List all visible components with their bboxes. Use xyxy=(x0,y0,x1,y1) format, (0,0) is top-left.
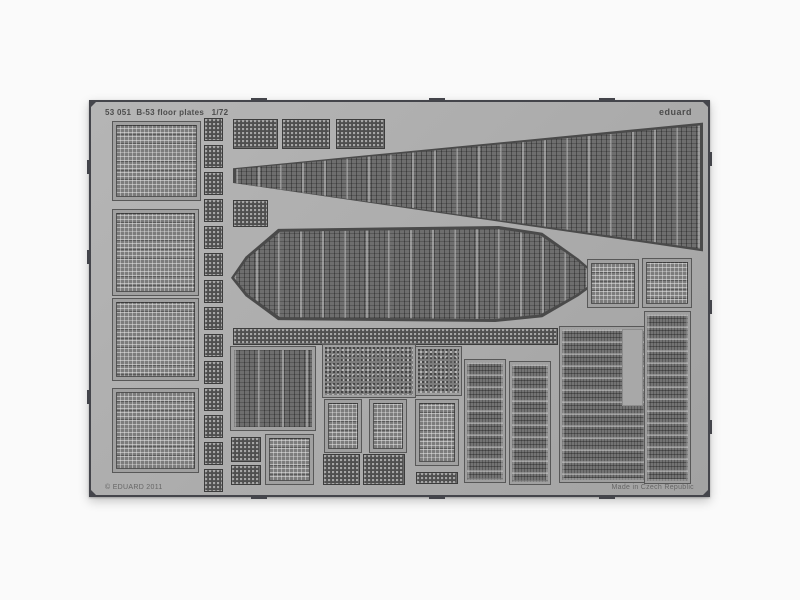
part-mesh-small-3 xyxy=(323,454,360,485)
part-mesh-plate-3 xyxy=(336,119,385,149)
part-ladder-panel-2 xyxy=(510,362,550,484)
part-strip-3 xyxy=(204,172,223,195)
edge-tab-left-2 xyxy=(87,250,91,264)
pe-sheet: 53 051 B-53 floor plates 1/72 eduard © E… xyxy=(89,100,710,497)
part-ladder-panel-1 xyxy=(465,360,505,482)
edge-tab-bottom-2 xyxy=(429,495,445,499)
catalog-title-text: 53 051 B-53 floor plates 1/72 xyxy=(105,108,228,117)
corner-mark-top-right xyxy=(701,100,710,109)
part-walkway-panel xyxy=(231,347,315,430)
corner-mark-top-left xyxy=(89,100,98,109)
part-strip-9 xyxy=(204,334,223,357)
part-strip-8 xyxy=(204,307,223,330)
part-strip-13 xyxy=(204,442,223,465)
part-square-grate-1 xyxy=(588,260,638,307)
edge-tab-right-3 xyxy=(708,420,712,434)
eduard-logo-text: eduard xyxy=(659,107,692,117)
part-floor-panel-2 xyxy=(113,210,198,295)
edge-tab-bottom-3 xyxy=(599,495,615,499)
part-strip-2 xyxy=(204,145,223,168)
part-grate-small-1 xyxy=(325,400,361,452)
part-dense-grid-panel xyxy=(266,435,313,484)
part-octagon-deck xyxy=(231,226,593,322)
edge-tab-right-1 xyxy=(708,152,712,166)
part-speckle-panel-small xyxy=(416,347,461,395)
part-mesh-small-2 xyxy=(231,465,261,485)
part-mesh-plate-4 xyxy=(233,200,268,227)
edge-tab-left-3 xyxy=(87,390,91,404)
part-mesh-small-4 xyxy=(363,454,405,485)
part-tall-right-panel xyxy=(645,312,690,483)
edge-tab-right-2 xyxy=(708,300,712,314)
part-strip-11 xyxy=(204,388,223,411)
part-speckle-panel-wide xyxy=(323,345,415,397)
part-strip-14 xyxy=(204,469,223,492)
part-grate-small-2 xyxy=(370,400,406,452)
photo-background: 53 051 B-53 floor plates 1/72 eduard © E… xyxy=(0,0,800,600)
part-strip-12 xyxy=(204,415,223,438)
corner-mark-bottom-left xyxy=(89,488,98,497)
edge-tab-left-1 xyxy=(87,160,91,174)
part-mesh-plate-1 xyxy=(233,119,278,149)
edge-tab-top-2 xyxy=(429,98,445,102)
part-strip-10 xyxy=(204,361,223,384)
corner-mark-bottom-right xyxy=(701,488,710,497)
part-floor-panel-1 xyxy=(113,122,200,200)
part-mesh-strip-long xyxy=(233,328,558,345)
edge-tab-top-1 xyxy=(251,98,267,102)
part-mesh-plate-2 xyxy=(282,119,330,149)
part-strip-7 xyxy=(204,280,223,303)
edge-tab-top-3 xyxy=(599,98,615,102)
part-floor-panel-4 xyxy=(113,389,198,472)
part-strip-6 xyxy=(204,253,223,276)
part-grate-small-3 xyxy=(416,400,458,465)
part-mesh-small-1 xyxy=(231,437,261,462)
made-in-text: Made in Czech Republic xyxy=(612,484,694,491)
edge-tab-bottom-1 xyxy=(251,495,267,499)
part-floor-panel-3 xyxy=(113,299,198,380)
part-blank-notch xyxy=(622,329,643,406)
part-octagon-deck-surface xyxy=(234,229,590,319)
part-strip-5 xyxy=(204,226,223,249)
part-mesh-small-5 xyxy=(416,472,458,484)
copyright-text: © EDUARD 2011 xyxy=(105,484,163,491)
part-strip-4 xyxy=(204,199,223,222)
part-strip-1 xyxy=(204,118,223,141)
part-square-grate-2 xyxy=(643,259,691,307)
